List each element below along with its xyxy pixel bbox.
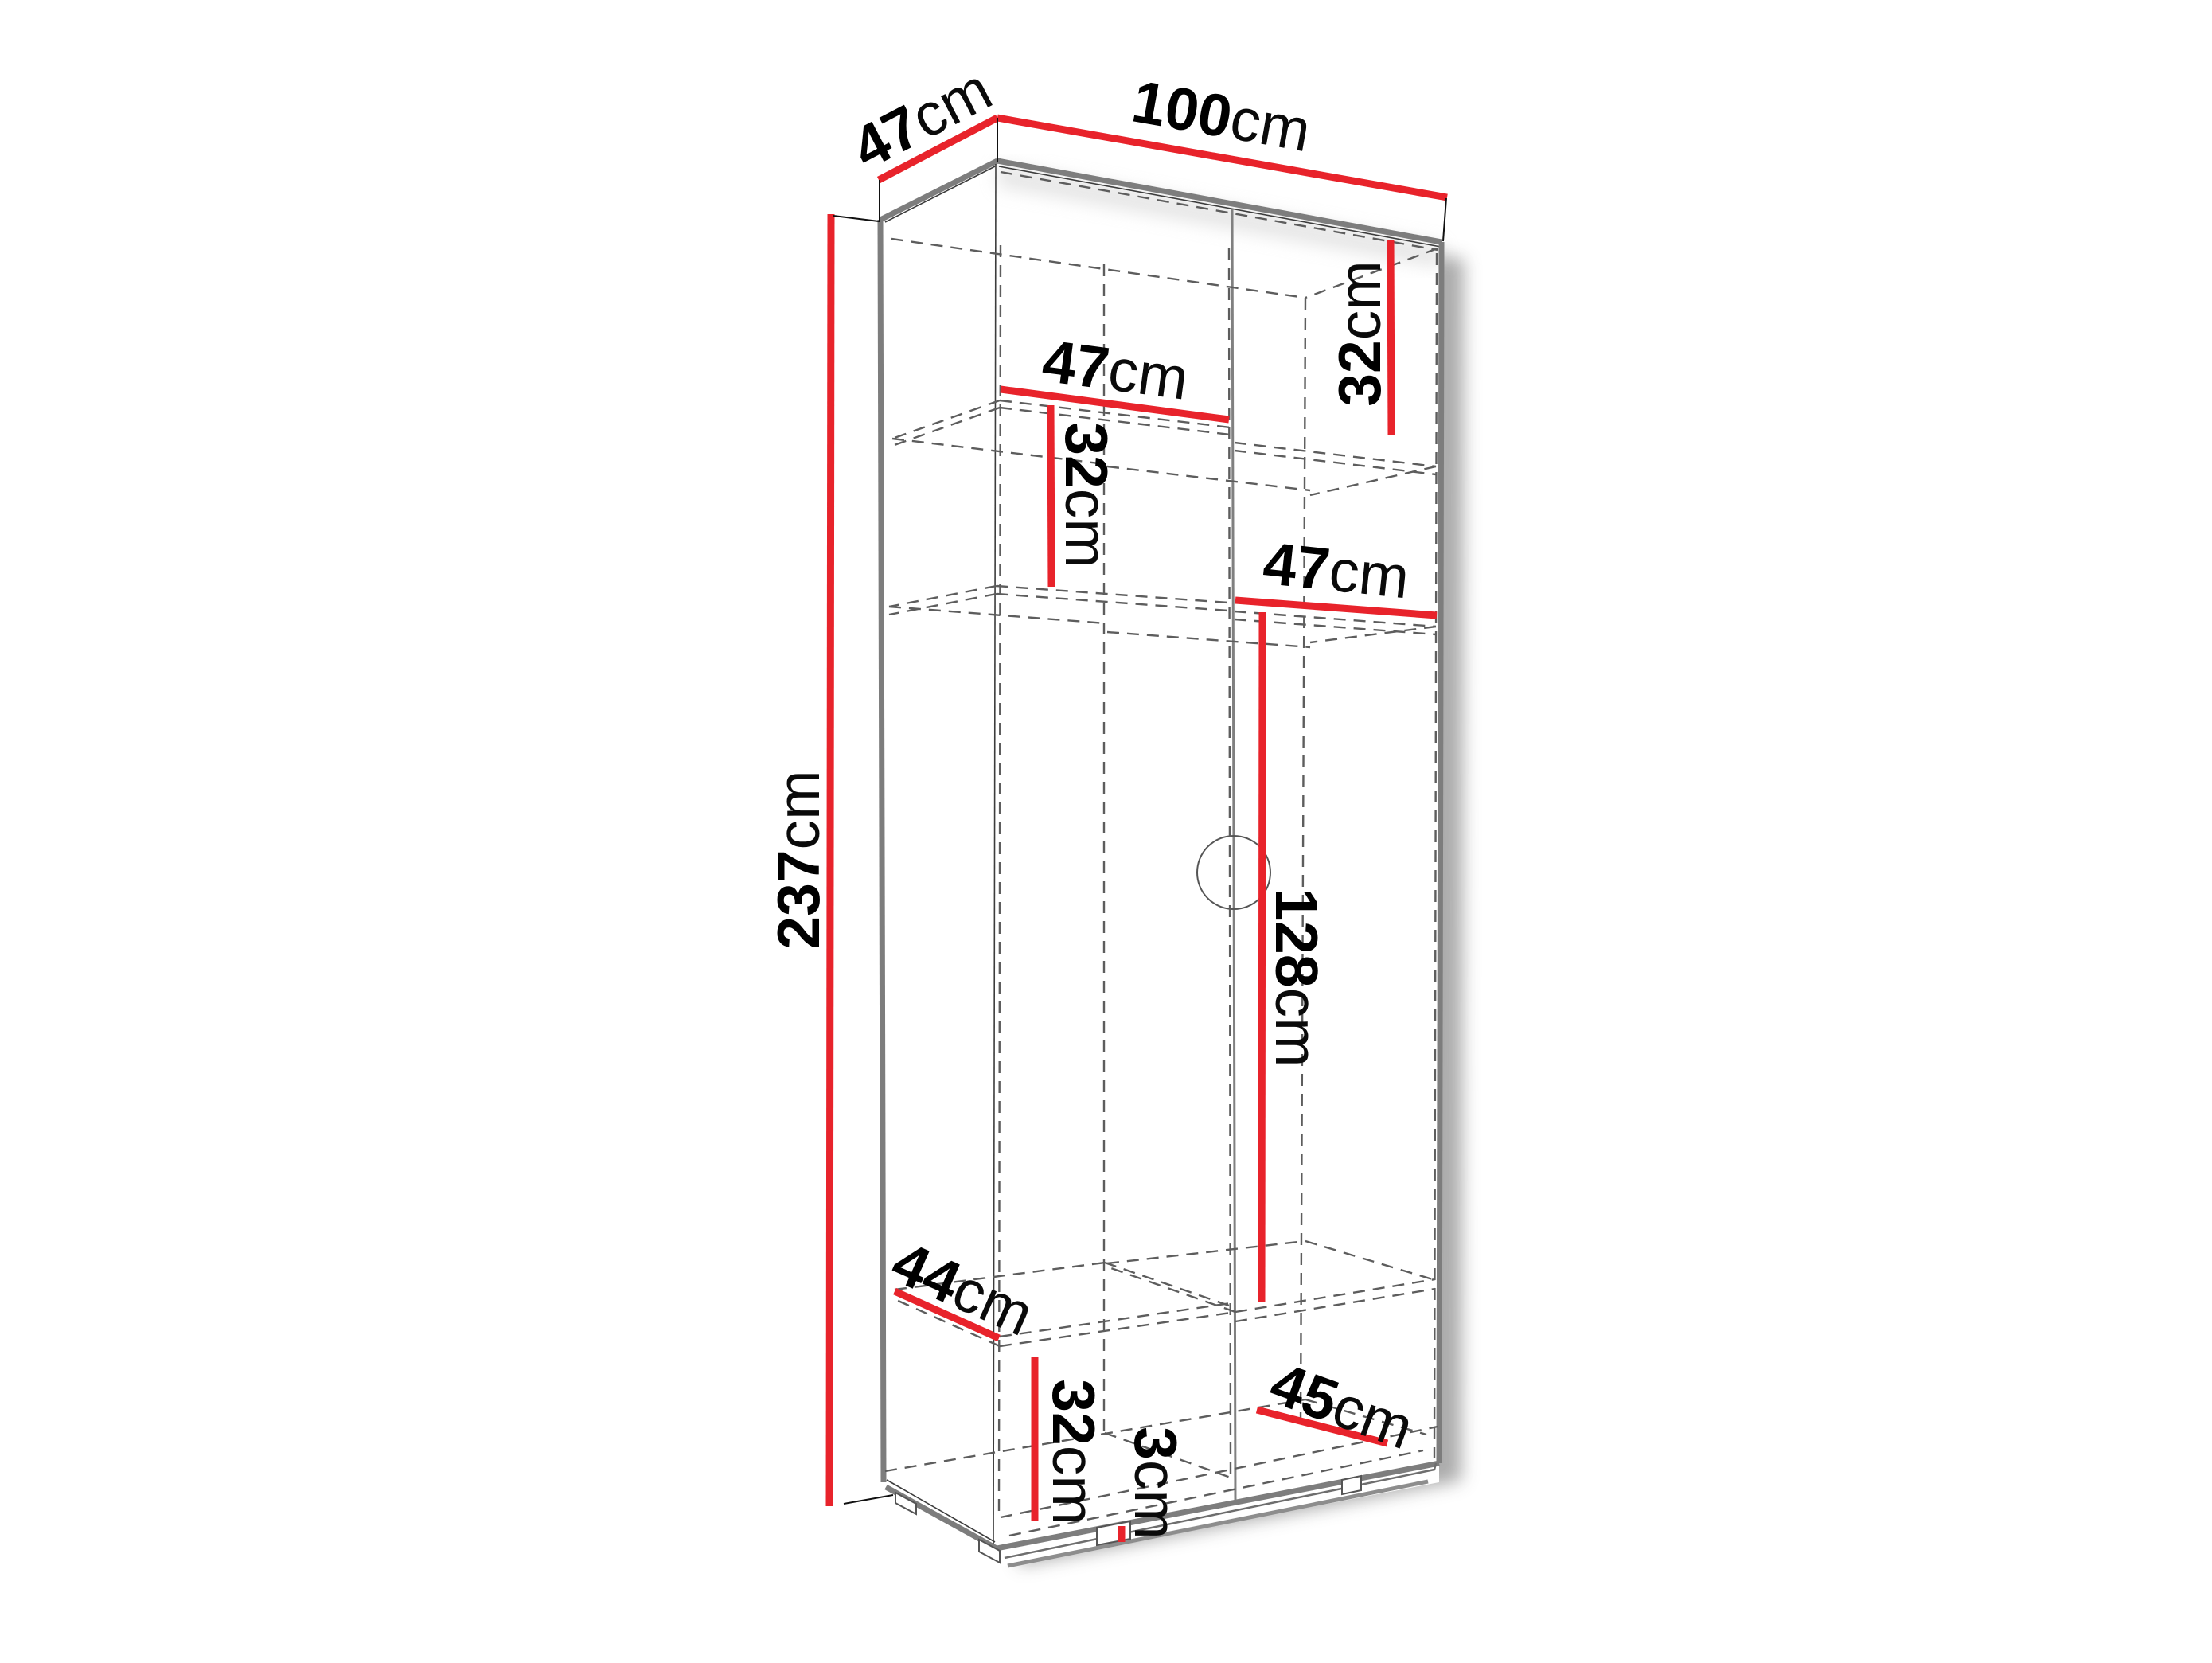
svg-text:237cm: 237cm: [765, 770, 832, 949]
svg-text:3cm: 3cm: [1122, 1427, 1189, 1540]
svg-text:128cm: 128cm: [1263, 888, 1330, 1067]
svg-text:32cm: 32cm: [1326, 260, 1393, 406]
svg-text:32cm: 32cm: [1053, 422, 1120, 568]
svg-text:32cm: 32cm: [1040, 1379, 1107, 1524]
